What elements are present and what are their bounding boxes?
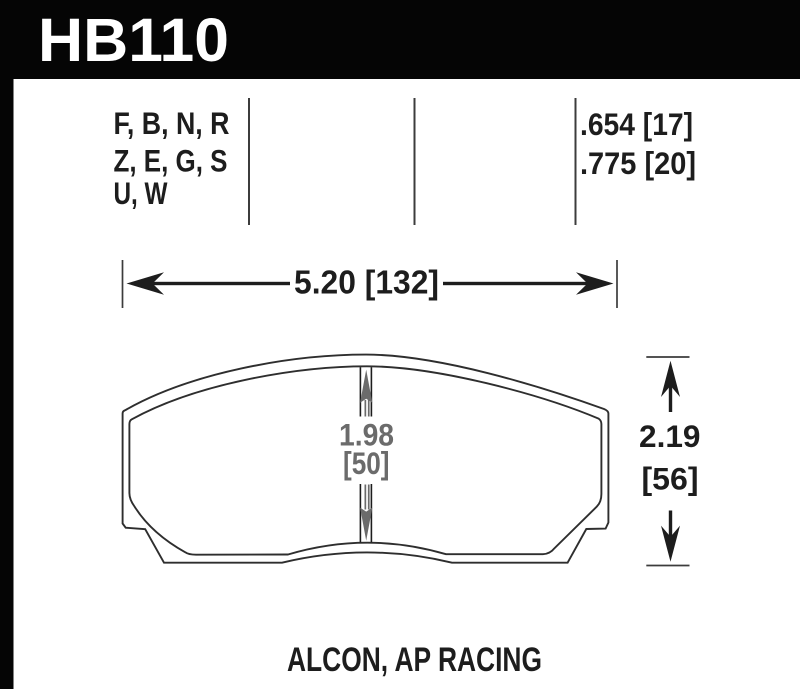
- svg-text:Z, E, G, S: Z, E, G, S: [114, 143, 228, 179]
- svg-text:F, B, N, R: F, B, N, R: [114, 105, 230, 141]
- svg-text:5.20 [132]: 5.20 [132]: [294, 265, 439, 302]
- svg-text:[50]: [50]: [343, 445, 390, 481]
- svg-text:2.19: 2.19: [639, 418, 701, 454]
- svg-text:HB110: HB110: [38, 6, 229, 74]
- svg-text:ALCON, AP RACING: ALCON, AP RACING: [287, 641, 542, 679]
- svg-text:.775 [20]: .775 [20]: [580, 145, 696, 181]
- svg-text:U, W: U, W: [114, 175, 168, 211]
- svg-text:.654 [17]: .654 [17]: [580, 106, 693, 142]
- svg-text:[56]: [56]: [642, 461, 699, 497]
